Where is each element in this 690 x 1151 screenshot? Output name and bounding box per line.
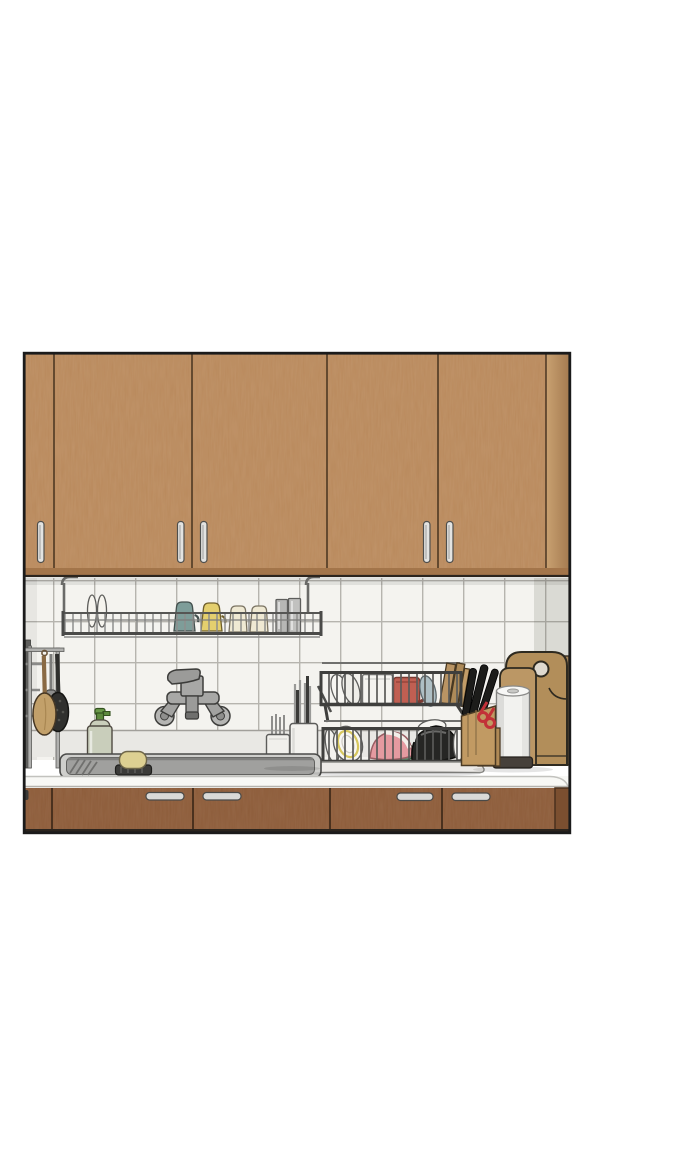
kitchen-illustration: [0, 0, 690, 1151]
upper-cabinet-side-panel: [546, 353, 571, 576]
bottom-basket-wires: [322, 728, 472, 763]
sink: [60, 754, 321, 778]
top-basket-wires: [320, 672, 462, 705]
comic-page: [0, 0, 690, 1151]
black-skimmer-handle: [57, 654, 59, 694]
wooden-spoon-handle: [44, 656, 45, 695]
upper-cabinet-bottom-edge: [23, 568, 571, 576]
counter: [23, 776, 571, 790]
upper-cabinets: [23, 353, 571, 576]
rack-pole: [28, 646, 32, 768]
rack-basket-wires: [62, 612, 322, 635]
lower-cabinets: [23, 788, 571, 834]
soap-bar: [120, 752, 147, 769]
faucet-spout: [186, 696, 198, 714]
